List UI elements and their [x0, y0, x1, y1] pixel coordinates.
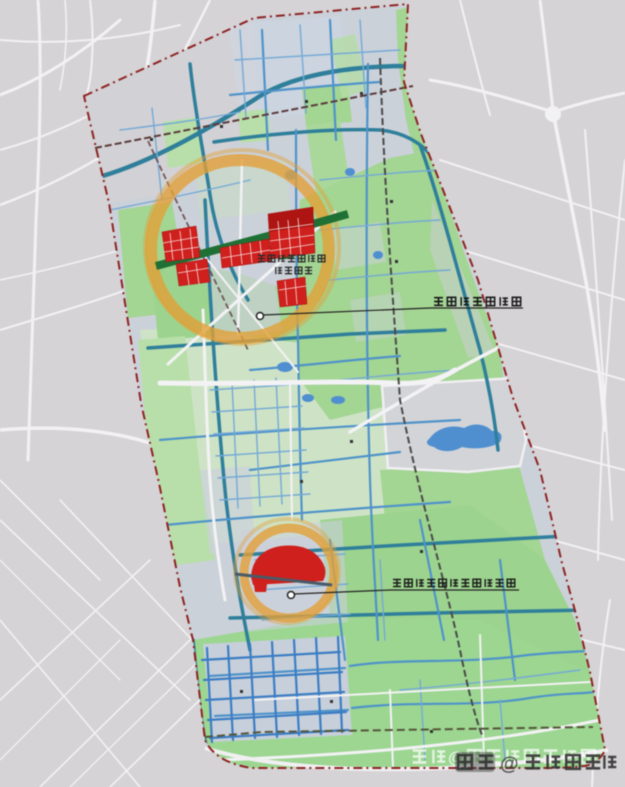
svg-text:@: @ [500, 754, 519, 775]
